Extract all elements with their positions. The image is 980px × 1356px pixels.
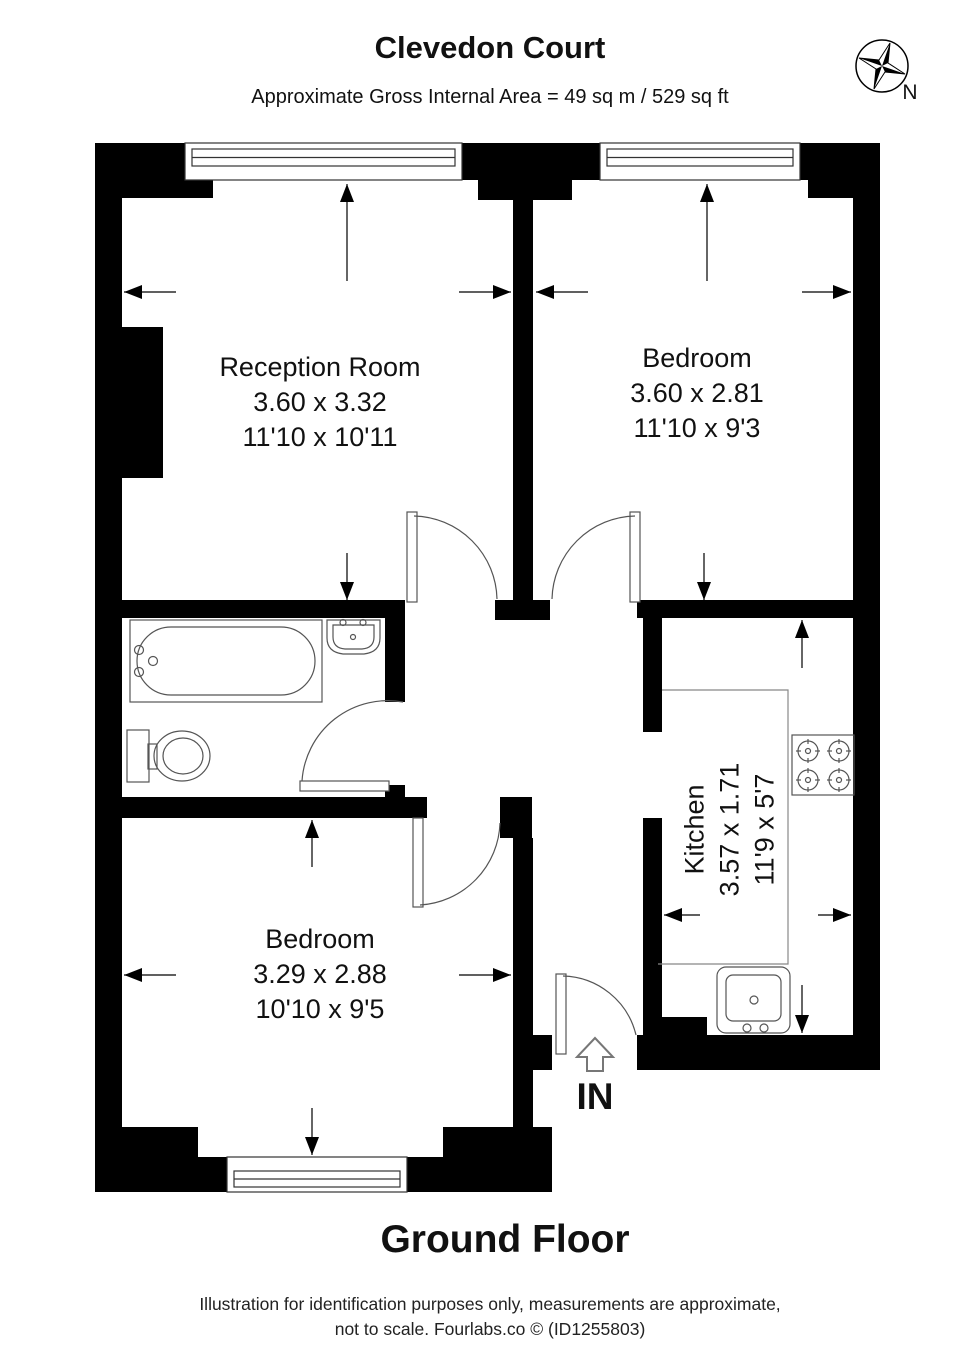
door-bathroom	[300, 701, 403, 791]
compass-north-label: N	[880, 75, 940, 110]
walls	[95, 143, 880, 1192]
room-name: Reception Room	[170, 350, 470, 385]
door-bedroom-2	[413, 818, 500, 907]
bathroom-sink	[327, 620, 380, 655]
room-label-bedroom-2: Bedroom 3.29 x 2.88 10'10 x 9'5	[170, 922, 470, 1027]
floorplan-page: Clevedon Court Approximate Gross Interna…	[0, 0, 980, 1356]
entrance-in-label: IN	[545, 1078, 645, 1116]
window-bedroom-2	[227, 1157, 407, 1192]
door-bedroom-1	[552, 512, 640, 602]
toilet	[127, 730, 210, 782]
room-imperial: 11'10 x 10'11	[170, 420, 470, 455]
room-metric: 3.60 x 2.81	[547, 376, 847, 411]
floorplan-drawing	[0, 0, 980, 1356]
room-label-reception: Reception Room 3.60 x 3.32 11'10 x 10'11	[170, 350, 470, 455]
room-metric: 3.60 x 3.32	[170, 385, 470, 420]
window-reception	[185, 143, 462, 180]
floor-name: Ground Floor	[15, 1218, 980, 1262]
room-imperial: 10'10 x 9'5	[170, 992, 470, 1027]
room-name: Kitchen	[678, 680, 713, 980]
room-imperial: 11'10 x 9'3	[547, 411, 847, 446]
footer-line-1: Illustration for identification purposes…	[0, 1292, 980, 1317]
hob	[792, 735, 854, 795]
entrance-arrow-icon	[577, 1038, 613, 1071]
area-subtitle: Approximate Gross Internal Area = 49 sq …	[0, 84, 980, 110]
footer-disclaimer: Illustration for identification purposes…	[0, 1292, 980, 1342]
room-label-kitchen: Kitchen 3.57 x 1.71 11'9 x 5'7	[678, 680, 783, 980]
room-metric: 3.29 x 2.88	[170, 957, 470, 992]
room-name: Bedroom	[170, 922, 470, 957]
room-imperial: 11'9 x 5'7	[748, 680, 783, 980]
footer-line-2: not to scale. Fourlabs.co © (ID1255803)	[0, 1317, 980, 1342]
window-bedroom-1	[600, 143, 800, 180]
door-reception	[407, 512, 497, 602]
page-title: Clevedon Court	[0, 30, 980, 66]
room-label-bedroom-1: Bedroom 3.60 x 2.81 11'10 x 9'3	[547, 341, 847, 446]
room-metric: 3.57 x 1.71	[713, 680, 748, 980]
room-name: Bedroom	[547, 341, 847, 376]
bathtub	[130, 620, 322, 702]
